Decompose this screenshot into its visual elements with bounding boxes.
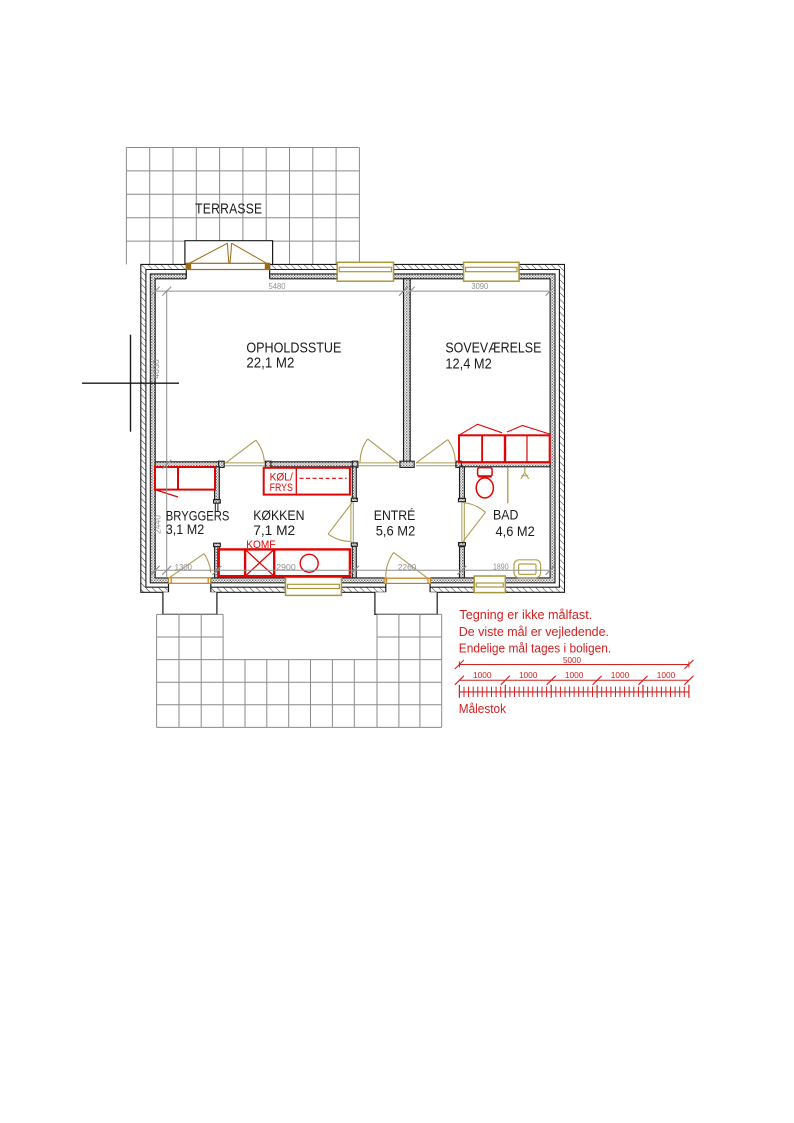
svg-text:4030: 4030 (151, 359, 161, 379)
svg-text:3090: 3090 (471, 281, 488, 291)
svg-text:Endelige mål tages i boligen.: Endelige mål tages i boligen. (459, 641, 611, 655)
svg-text:2260: 2260 (398, 562, 417, 572)
svg-text:5480: 5480 (269, 281, 286, 291)
svg-text:1000: 1000 (565, 670, 584, 680)
svg-text:2900: 2900 (276, 562, 296, 572)
svg-text:FRYS: FRYS (270, 482, 293, 494)
svg-text:7,1 M2: 7,1 M2 (253, 522, 295, 538)
svg-text:1000: 1000 (657, 670, 676, 680)
svg-text:ENTRÉ: ENTRÉ (374, 507, 416, 523)
svg-text:1300: 1300 (175, 562, 193, 572)
svg-text:1890: 1890 (493, 561, 509, 571)
svg-text:BAD: BAD (493, 507, 518, 523)
svg-text:1000: 1000 (611, 670, 630, 680)
svg-text:1000: 1000 (473, 670, 492, 680)
svg-text:5,6 M2: 5,6 M2 (376, 523, 416, 539)
svg-text:KOMF: KOMF (246, 539, 275, 551)
svg-text:KØKKEN: KØKKEN (253, 507, 304, 523)
svg-text:1000: 1000 (519, 670, 538, 680)
svg-text:3,1 M2: 3,1 M2 (166, 521, 205, 537)
svg-text:4,6 M2: 4,6 M2 (496, 523, 535, 539)
svg-text:12,4 M2: 12,4 M2 (445, 356, 491, 373)
svg-text:TERRASSE: TERRASSE (195, 201, 262, 218)
svg-text:De viste mål er vejledende.: De viste mål er vejledende. (459, 625, 609, 639)
svg-text:2440: 2440 (153, 515, 163, 534)
svg-text:5000: 5000 (563, 655, 581, 665)
svg-text:Målestok: Målestok (459, 701, 507, 716)
svg-text:22,1 M2: 22,1 M2 (246, 355, 294, 372)
svg-text:SOVEVÆRELSE: SOVEVÆRELSE (445, 340, 541, 357)
svg-text:Tegning er ikke målfast.: Tegning er ikke målfast. (459, 608, 592, 622)
